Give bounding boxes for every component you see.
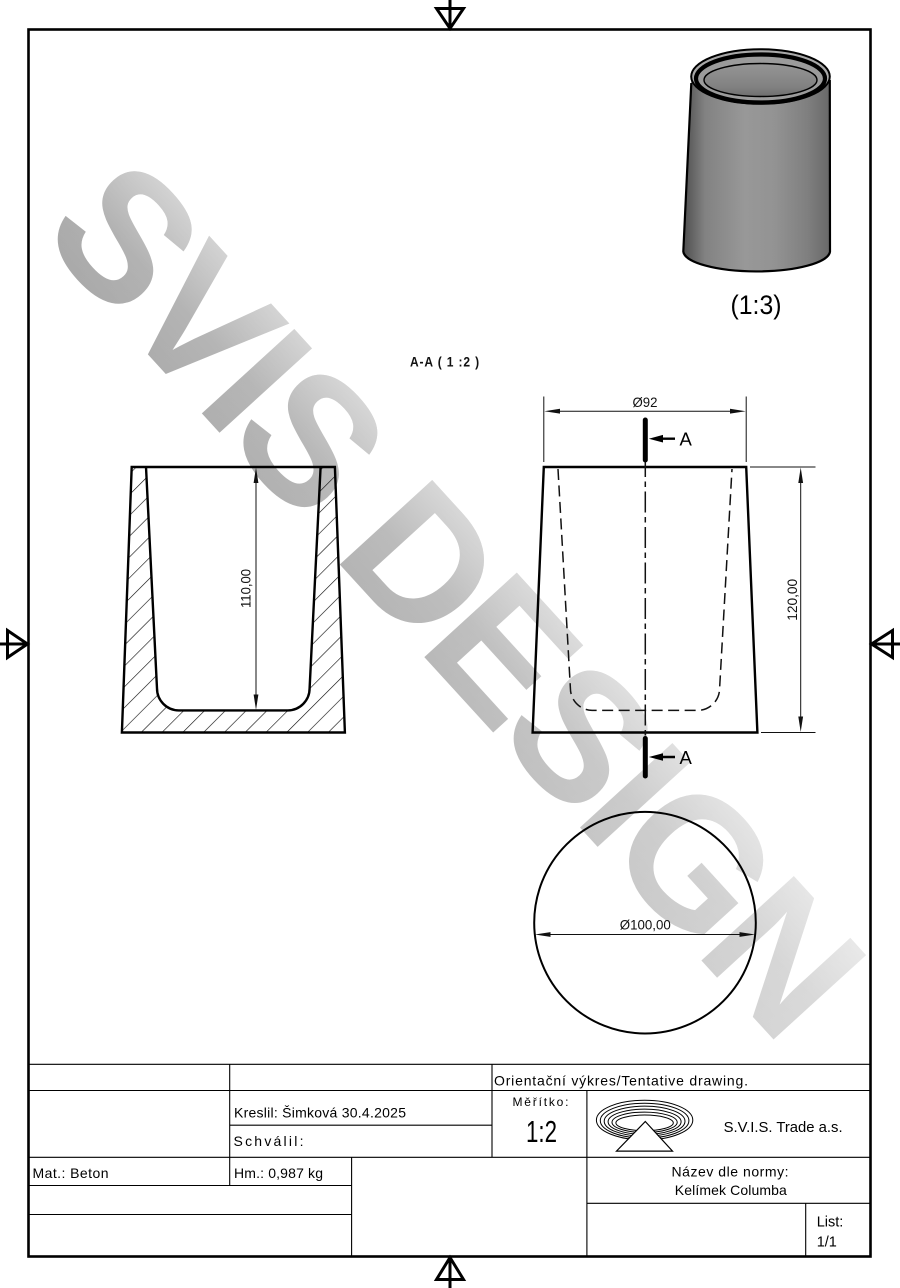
- svg-text:Mat.: Beton: Mat.: Beton: [33, 1165, 109, 1181]
- svg-text:Hm.: 0,987 kg: Hm.: 0,987 kg: [234, 1165, 323, 1181]
- svg-text:120,00: 120,00: [784, 579, 800, 621]
- svg-text:1:2: 1:2: [526, 1114, 557, 1149]
- svg-text:List:: List:: [817, 1215, 844, 1231]
- svg-text:Měřítko:: Měřítko:: [513, 1095, 569, 1109]
- svg-text:Ø100,00: Ø100,00: [620, 917, 671, 933]
- svg-text:Ø92: Ø92: [633, 394, 658, 410]
- svg-text:Kelímek Columba: Kelímek Columba: [675, 1182, 787, 1198]
- svg-text:(1:3): (1:3): [731, 290, 782, 320]
- svg-text:1/1: 1/1: [817, 1235, 837, 1251]
- svg-text:A: A: [680, 429, 693, 450]
- svg-text:S.V.I.S. Trade a.s.: S.V.I.S. Trade a.s.: [724, 1119, 843, 1136]
- svg-text:110,00: 110,00: [238, 569, 254, 608]
- svg-text:A: A: [680, 747, 693, 768]
- svg-text:Orientační výkres/Tentative dr: Orientační výkres/Tentative drawing.: [494, 1072, 748, 1088]
- svg-text:Název dle normy:: Název dle normy:: [672, 1164, 789, 1180]
- svg-text:Schválil:: Schválil:: [234, 1133, 304, 1149]
- svg-text:A-A ( 1 :2 ): A-A ( 1 :2 ): [410, 354, 480, 370]
- svg-text:Kreslil: Šimková 30.4.2025: Kreslil: Šimková 30.4.2025: [234, 1105, 406, 1121]
